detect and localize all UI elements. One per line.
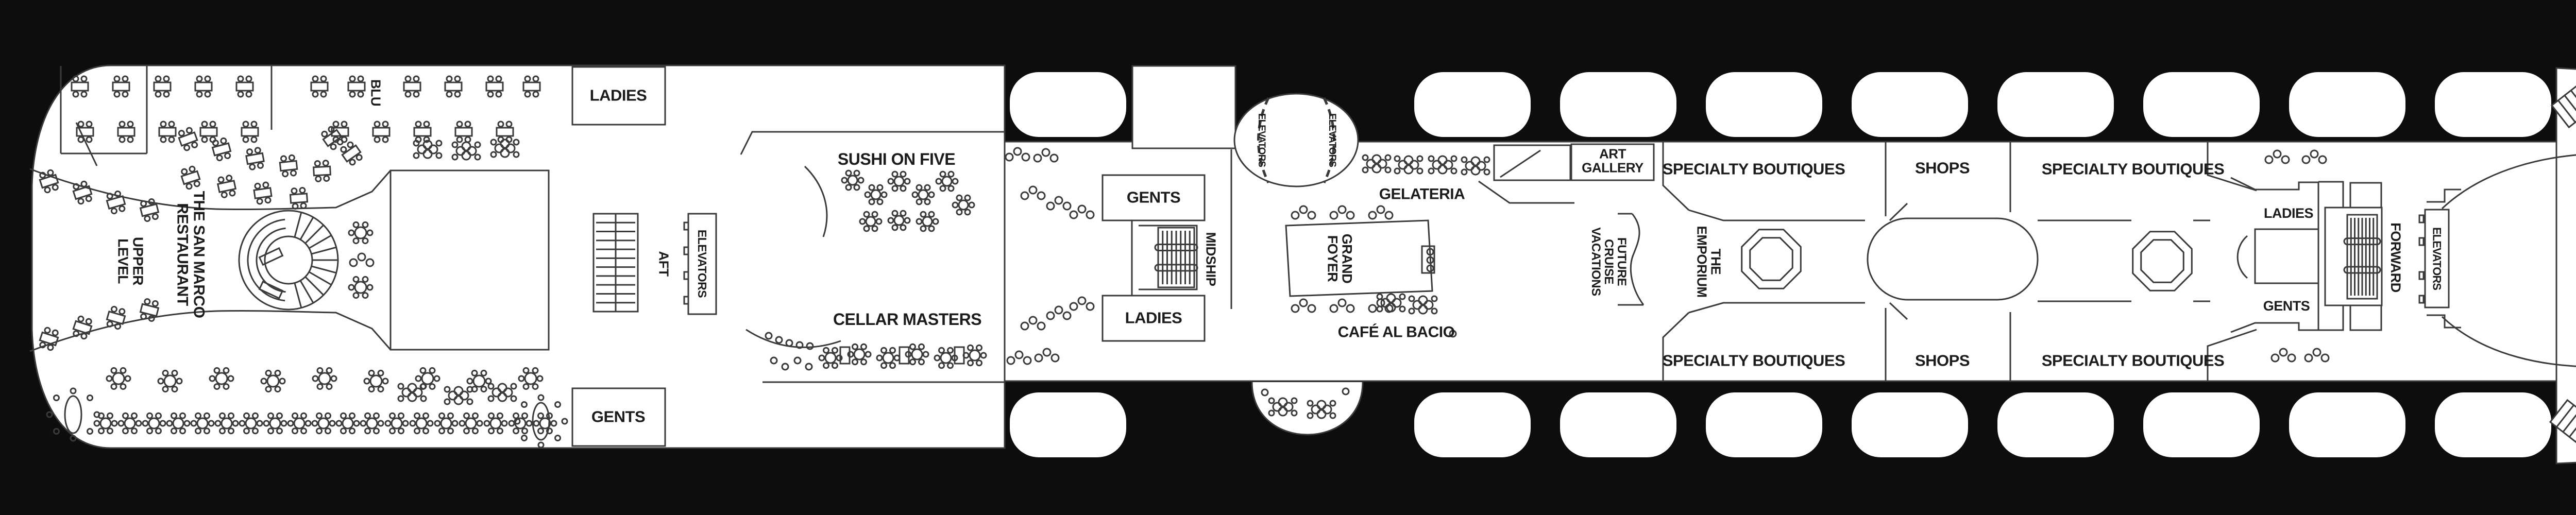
lifeboat-icon bbox=[1852, 392, 1968, 457]
label-stern-gents: GENTS bbox=[591, 409, 645, 426]
deck-plan: THE SAN MARCORESTAURANT UPPERLEVEL BLU L… bbox=[0, 0, 2576, 515]
lifeboat-icon bbox=[1852, 72, 1968, 137]
cafe-seating-bump bbox=[1252, 382, 1363, 435]
label-grand-foyer: GRANDFOYER bbox=[1325, 234, 1354, 284]
lifeboat-icon bbox=[2435, 72, 2551, 137]
label-art-gallery: ARTGALLERY bbox=[1582, 147, 1643, 176]
lifeboat-icon bbox=[1414, 392, 1531, 457]
deck-plan-drawing bbox=[0, 0, 2576, 515]
label-specialty-boutiques-bottom-right: SPECIALTY BOUTIQUES bbox=[2042, 353, 2225, 370]
lifeboat-icon bbox=[2143, 392, 2260, 457]
label-gelateria: GELATERIA bbox=[1379, 186, 1465, 202]
lifeboat-icon bbox=[1560, 392, 1676, 457]
label-specialty-boutiques-bottom-left: SPECIALTY BOUTIQUES bbox=[1663, 353, 1845, 370]
label-cellar-masters: CELLAR MASTERS bbox=[833, 311, 981, 329]
label-forward-gents: GENTS bbox=[2263, 299, 2310, 313]
lifeboat-icon bbox=[1997, 392, 2114, 457]
label-future-cruise-vacations: FUTURECRUISEVACATIONS bbox=[1589, 227, 1628, 296]
label-midship-ladies: LADIES bbox=[1125, 310, 1182, 327]
lifeboat-icon bbox=[1414, 72, 1531, 137]
superstructure-room bbox=[1132, 66, 1235, 148]
label-midship-gents: GENTS bbox=[1127, 190, 1180, 207]
label-cafe-al-bacio: CAFÉ AL BACIO bbox=[1338, 324, 1455, 340]
label-aft: AFT bbox=[656, 251, 670, 276]
label-stern-ladies: LADIES bbox=[590, 88, 647, 105]
lifeboat-icon bbox=[1560, 72, 1676, 137]
label-shops-bottom: SHOPS bbox=[1915, 353, 1970, 370]
label-the-emporium: THEEMPORIUM bbox=[1694, 226, 1723, 298]
label-aft-elevators: ELEVATORS bbox=[696, 230, 708, 298]
lifeboats-bottom bbox=[1010, 392, 2551, 457]
label-midship: MIDSHIP bbox=[1204, 232, 1217, 286]
label-forward-elevators: ELEVATORS bbox=[2431, 227, 2443, 290]
label-specialty-boutiques-top-left: SPECIALTY BOUTIQUES bbox=[1663, 161, 1845, 178]
label-rotunda-elevators-left: ELEVATORS bbox=[1256, 113, 1266, 167]
label-blu: BLU bbox=[368, 79, 382, 106]
lifeboat-icon bbox=[1706, 392, 1822, 457]
lifeboat-icon bbox=[2435, 392, 2551, 457]
label-rotunda-elevators-right: ELEVATORS bbox=[1327, 113, 1337, 167]
lifeboat-icon bbox=[1010, 392, 1126, 457]
label-shops-top: SHOPS bbox=[1915, 160, 1970, 177]
lifeboat-icon bbox=[1997, 72, 2114, 137]
label-specialty-boutiques-top-right: SPECIALTY BOUTIQUES bbox=[2042, 161, 2225, 178]
lifeboat-icon bbox=[2143, 72, 2260, 137]
label-forward: FORWARD bbox=[2388, 222, 2403, 293]
label-san-marco-restaurant: THE SAN MARCORESTAURANT bbox=[175, 191, 207, 318]
lifeboat-icon bbox=[2289, 72, 2405, 137]
lifeboat-icon bbox=[1706, 72, 1822, 137]
elevator-rotunda bbox=[1234, 94, 1358, 186]
label-sushi-on-five: SUSHI ON FIVE bbox=[838, 151, 955, 168]
lifeboat-icon bbox=[2289, 392, 2405, 457]
label-forward-ladies: LADIES bbox=[2264, 206, 2313, 220]
lifeboat-icon bbox=[1010, 72, 1126, 137]
label-upper-level: UPPERLEVEL bbox=[115, 237, 146, 285]
